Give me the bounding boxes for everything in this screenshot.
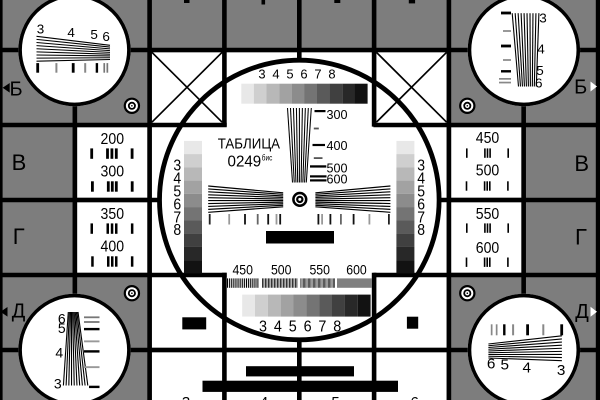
svg-text:Г: Г xyxy=(13,224,25,249)
svg-text:6: 6 xyxy=(535,75,543,90)
svg-text:3: 3 xyxy=(182,394,190,400)
svg-text:500: 500 xyxy=(476,163,500,180)
svg-text:4: 4 xyxy=(274,319,282,336)
svg-text:Д: Д xyxy=(575,301,589,323)
svg-text:200: 200 xyxy=(101,131,125,148)
svg-text:В: В xyxy=(574,151,589,176)
svg-text:4: 4 xyxy=(537,42,545,57)
svg-text:5: 5 xyxy=(58,321,66,336)
svg-text:7: 7 xyxy=(318,319,326,336)
svg-text:5: 5 xyxy=(289,319,297,336)
svg-text:3: 3 xyxy=(54,377,62,392)
svg-text:450: 450 xyxy=(476,130,500,147)
svg-text:6: 6 xyxy=(487,355,496,372)
svg-text:Г: Г xyxy=(575,225,587,250)
svg-text:500: 500 xyxy=(271,263,292,278)
svg-text:8: 8 xyxy=(333,319,341,336)
svg-text:4: 4 xyxy=(272,68,279,82)
svg-text:3: 3 xyxy=(37,21,45,36)
svg-text:5: 5 xyxy=(331,394,339,400)
svg-text:5: 5 xyxy=(90,27,98,42)
svg-text:600: 600 xyxy=(346,263,367,278)
svg-text:8: 8 xyxy=(328,68,335,82)
svg-text:Д: Д xyxy=(12,301,26,323)
svg-text:6: 6 xyxy=(304,319,312,336)
svg-text:7: 7 xyxy=(314,68,321,82)
svg-text:450: 450 xyxy=(232,263,253,278)
svg-text:400: 400 xyxy=(327,139,348,153)
svg-text:6: 6 xyxy=(411,394,419,400)
svg-text:300: 300 xyxy=(327,108,348,122)
svg-text:3: 3 xyxy=(539,10,547,25)
svg-text:600: 600 xyxy=(327,173,348,187)
svg-text:В: В xyxy=(12,150,27,175)
svg-text:3: 3 xyxy=(258,68,265,82)
svg-text:350: 350 xyxy=(101,206,125,223)
svg-text:бис: бис xyxy=(262,154,273,163)
svg-text:600: 600 xyxy=(476,240,500,257)
svg-text:6: 6 xyxy=(300,68,307,82)
svg-text:3: 3 xyxy=(259,319,267,336)
svg-text:0249: 0249 xyxy=(228,154,262,171)
svg-text:8: 8 xyxy=(173,222,181,239)
svg-text:4: 4 xyxy=(523,360,532,377)
svg-text:Б: Б xyxy=(574,77,587,99)
svg-text:Б: Б xyxy=(9,79,22,101)
svg-text:4: 4 xyxy=(55,346,63,361)
svg-text:400: 400 xyxy=(101,239,125,256)
svg-text:550: 550 xyxy=(476,206,500,223)
svg-text:3: 3 xyxy=(557,362,566,379)
svg-text:5: 5 xyxy=(286,68,293,82)
svg-text:550: 550 xyxy=(309,263,330,278)
svg-text:4: 4 xyxy=(260,394,268,400)
svg-text:5: 5 xyxy=(501,357,510,374)
svg-text:300: 300 xyxy=(101,164,125,181)
svg-text:4: 4 xyxy=(67,25,75,40)
svg-text:6: 6 xyxy=(102,29,110,44)
svg-text:ТАБЛИЦА: ТАБЛИЦА xyxy=(218,136,281,152)
svg-text:8: 8 xyxy=(417,222,425,239)
